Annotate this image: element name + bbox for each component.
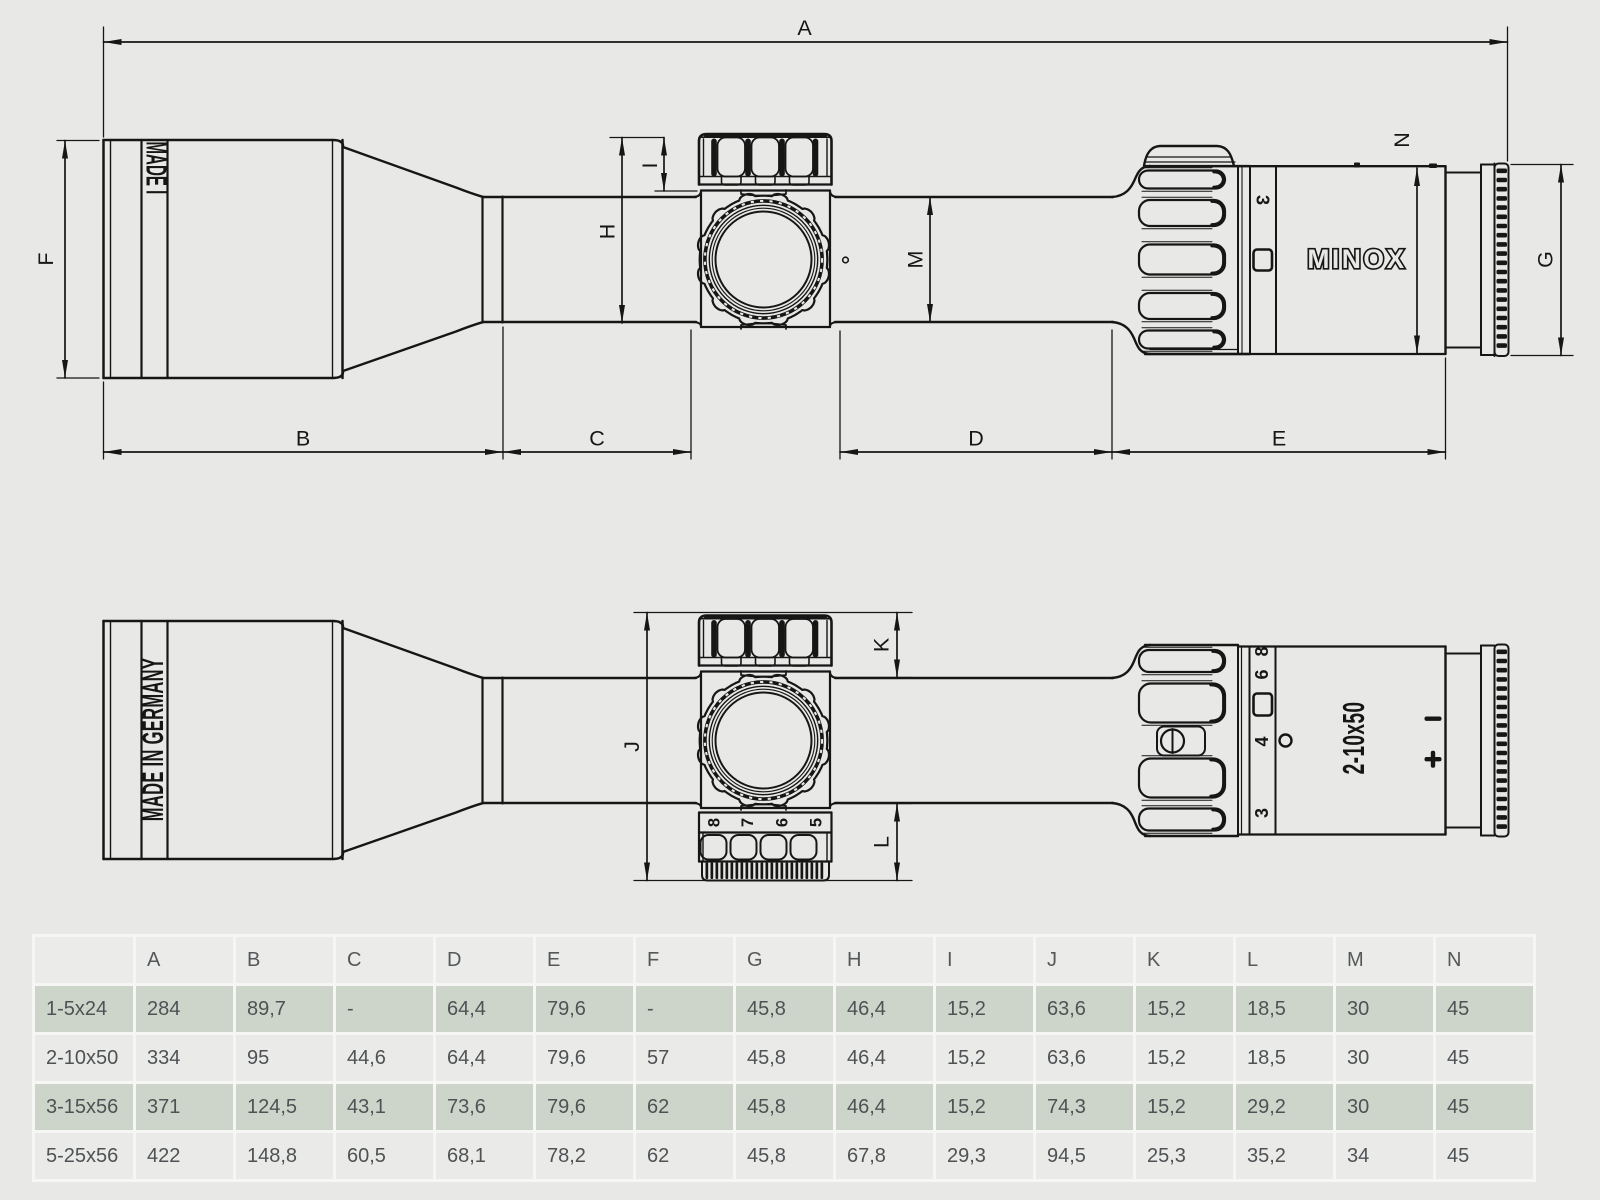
svg-text:MINOX: MINOX bbox=[1307, 244, 1406, 274]
svg-text:8: 8 bbox=[1252, 646, 1272, 656]
svg-text:A: A bbox=[797, 16, 812, 40]
svg-text:4: 4 bbox=[1252, 736, 1272, 746]
svg-text:L: L bbox=[870, 836, 894, 848]
svg-text:H: H bbox=[596, 224, 620, 240]
svg-text:7: 7 bbox=[739, 818, 757, 827]
svg-text:E: E bbox=[1272, 427, 1286, 451]
svg-text:B: B bbox=[296, 427, 310, 451]
svg-text:D: D bbox=[968, 427, 984, 451]
svg-text:6: 6 bbox=[773, 818, 791, 827]
svg-text:3: 3 bbox=[1253, 195, 1273, 205]
svg-text:MADE I: MADE I bbox=[140, 142, 173, 195]
svg-text:J: J bbox=[620, 741, 644, 752]
svg-text:MADE IN GERMANY: MADE IN GERMANY bbox=[137, 658, 170, 821]
svg-text:2-10x50: 2-10x50 bbox=[1338, 702, 1372, 775]
svg-text:F: F bbox=[34, 252, 58, 265]
svg-text:3: 3 bbox=[1252, 808, 1272, 818]
svg-text:I: I bbox=[638, 163, 662, 169]
svg-text:G: G bbox=[1534, 251, 1558, 268]
svg-text:K: K bbox=[870, 637, 894, 652]
svg-text:M: M bbox=[904, 251, 928, 269]
svg-text:8: 8 bbox=[705, 818, 723, 827]
svg-text:N: N bbox=[1390, 132, 1414, 148]
svg-text:6: 6 bbox=[1252, 669, 1272, 679]
svg-text:5: 5 bbox=[807, 818, 825, 827]
svg-text:C: C bbox=[589, 427, 605, 451]
